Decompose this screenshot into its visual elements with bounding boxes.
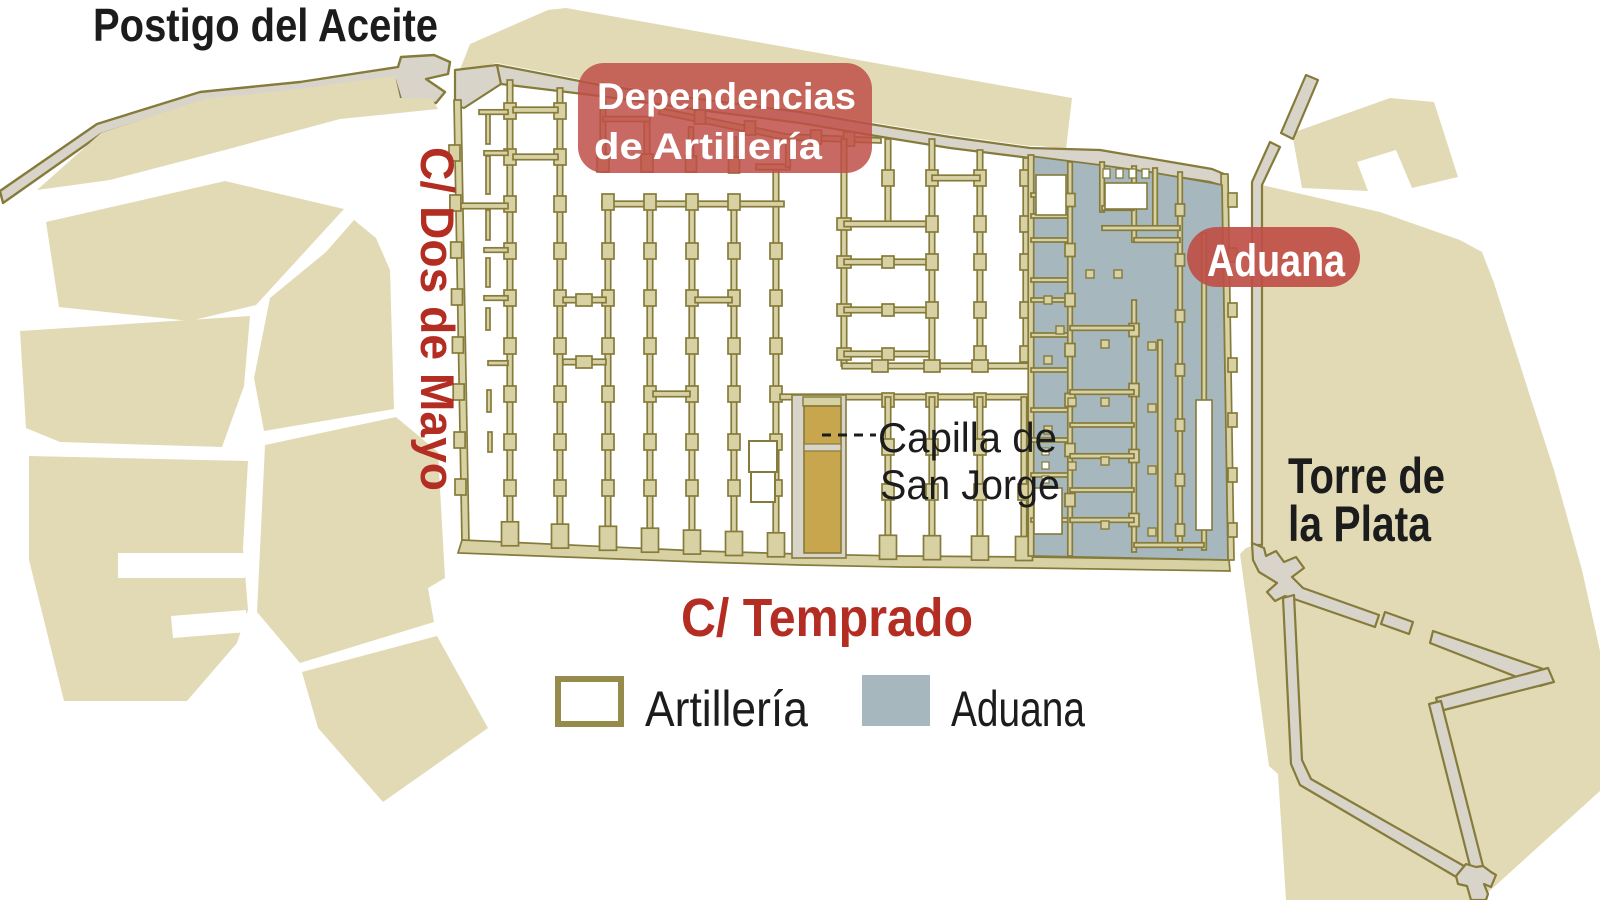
svg-text:de Artillería: de Artillería xyxy=(594,126,822,167)
svg-text:la Plata: la Plata xyxy=(1288,496,1432,552)
svg-text:Postigo del Aceite: Postigo del Aceite xyxy=(93,0,438,51)
svg-text:Dependencias: Dependencias xyxy=(597,76,856,117)
svg-text:Aduana: Aduana xyxy=(951,681,1085,737)
svg-text:Capilla de: Capilla de xyxy=(878,414,1057,461)
svg-text:Artillería: Artillería xyxy=(645,681,808,737)
svg-text:C/ Dos de Mayo: C/ Dos de Mayo xyxy=(411,147,464,491)
svg-text:C/ Temprado: C/ Temprado xyxy=(681,588,973,648)
svg-text:San Jorge: San Jorge xyxy=(880,461,1060,508)
svg-text:Aduana: Aduana xyxy=(1207,235,1346,286)
